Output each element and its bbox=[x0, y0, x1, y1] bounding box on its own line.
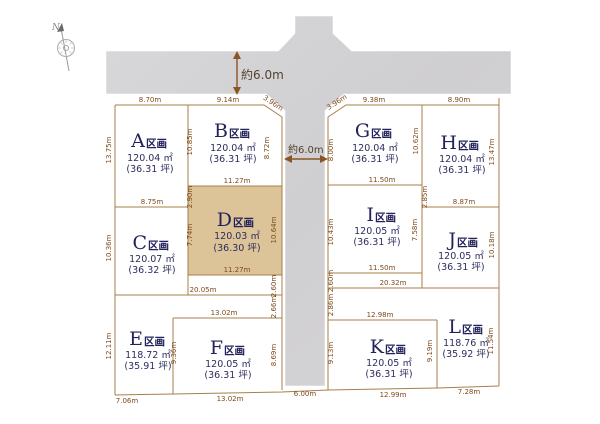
dim-k-left: 9.13m bbox=[327, 342, 335, 365]
dim-h-bottom: 8.87m bbox=[453, 198, 476, 206]
dim-i-left: 10.43m bbox=[327, 218, 335, 245]
plot-f-letter: F bbox=[210, 337, 223, 359]
dim-f-left: 9.36m bbox=[170, 342, 178, 365]
plot-a-suffix: 区画 bbox=[146, 138, 167, 150]
plot-l-suffix: 区画 bbox=[462, 324, 483, 336]
plot-f-tsubo: (36.31 坪) bbox=[204, 369, 251, 381]
dim-g-left: 8.00m bbox=[327, 139, 335, 162]
compass: N bbox=[51, 23, 75, 71]
plot-j-letter: J bbox=[446, 229, 456, 251]
plot-l-label: L 区画 118.76 ㎡ (35.92 坪) bbox=[442, 316, 489, 360]
dim-f-right: 8.69m bbox=[270, 344, 278, 367]
plot-a-letter: A bbox=[130, 130, 145, 152]
dim-e-bottom: 7.06m bbox=[116, 397, 139, 405]
plot-j-tsubo: (36.31 坪) bbox=[437, 261, 484, 273]
plot-f-suffix: 区画 bbox=[224, 345, 245, 357]
dim-a-left: 13.75m bbox=[105, 136, 113, 163]
plot-g-letter: G bbox=[355, 120, 370, 142]
plot-b-label: B 区画 120.04 ㎡ (36.31 坪) bbox=[209, 120, 256, 165]
plot-l-tsubo: (35.92 坪) bbox=[442, 348, 489, 360]
plot-a-area: 120.04 ㎡ bbox=[127, 153, 173, 164]
plot-h-letter: H bbox=[440, 132, 457, 154]
dim-b-right: 8.72m bbox=[263, 137, 271, 160]
plot-c-label: C 区画 120.07 ㎡ (36.32 坪) bbox=[128, 232, 175, 276]
dim-kl-top: 20.32m bbox=[380, 279, 407, 287]
dim-e-left: 12.11m bbox=[105, 332, 113, 359]
plot-i-label: I 区画 120.05 ㎡ (36.31 坪) bbox=[353, 204, 400, 248]
dim-h-right: 13.47m bbox=[488, 138, 496, 165]
dim-l-right: 11.54m bbox=[487, 327, 495, 354]
dim-road-bottom: 6.00m bbox=[294, 390, 317, 398]
plot-g-suffix: 区画 bbox=[371, 128, 392, 140]
plot-a-tsubo: (36.31 坪) bbox=[126, 163, 173, 175]
land-plot-diagram: N 約6.0m 約6.0m A 区画 120.04 ㎡ (36.31 坪) B … bbox=[0, 0, 600, 424]
dim-a-top: 8.70m bbox=[139, 96, 162, 104]
road-width-top-label: 約6.0m bbox=[241, 67, 284, 82]
dim-l-bottom: 7.28m bbox=[458, 388, 481, 396]
plot-k-area: 120.05 ㎡ bbox=[366, 358, 412, 369]
plot-d-suffix: 区画 bbox=[233, 217, 254, 229]
dim-b-top: 9.14m bbox=[217, 96, 240, 104]
plot-e-letter: E bbox=[129, 328, 143, 350]
plot-h-area: 120.04 ㎡ bbox=[439, 154, 485, 165]
plot-i-suffix: 区画 bbox=[375, 212, 396, 224]
plot-c-suffix: 区画 bbox=[148, 240, 169, 252]
plot-g-area: 120.04 ㎡ bbox=[352, 143, 398, 154]
plot-h-suffix: 区画 bbox=[458, 140, 479, 152]
dim-h-top: 8.90m bbox=[448, 96, 471, 104]
dim-d-segment: 2.60m bbox=[270, 275, 278, 298]
plot-h-label: H 区画 120.04 ㎡ (36.31 坪) bbox=[438, 132, 485, 176]
dim-d-right: 10.64m bbox=[270, 216, 278, 243]
dim-i-right: 7.58m bbox=[411, 219, 419, 242]
plot-e-area: 118.72 ㎡ bbox=[125, 350, 171, 361]
dim-k-bottom: 12.99m bbox=[380, 391, 407, 399]
plot-a-label: A 区画 120.04 ㎡ (36.31 坪) bbox=[126, 130, 173, 175]
dim-d-bottom: 11.27m bbox=[224, 266, 251, 274]
plot-j-area: 120.05 ㎡ bbox=[438, 251, 484, 262]
plot-d-area: 120.03 ㎡ bbox=[214, 231, 260, 242]
dim-i-left-upper: 2.85m bbox=[421, 186, 429, 209]
plot-i-area: 120.05 ㎡ bbox=[354, 226, 400, 237]
dim-g-top: 9.38m bbox=[363, 96, 386, 104]
plot-e-label: E 区画 118.72 ㎡ (35.91 坪) bbox=[124, 328, 171, 372]
plot-d-tsubo: (36.30 坪) bbox=[213, 242, 260, 254]
plot-f-area: 120.05 ㎡ bbox=[205, 359, 251, 370]
dim-gh-shared: 10.62m bbox=[412, 127, 420, 154]
dim-d-left-upper: 2.90m bbox=[186, 186, 194, 209]
dim-g-bottom: 11.50m bbox=[369, 176, 396, 184]
plot-d-letter: D bbox=[217, 209, 232, 231]
dim-b-bottom: 11.27m bbox=[224, 177, 251, 185]
plot-k-letter: K bbox=[370, 336, 385, 358]
site-plan: N 約6.0m 約6.0m A 区画 120.04 ㎡ (36.31 坪) B … bbox=[0, 0, 600, 424]
dim-d-left: 7.74m bbox=[186, 224, 194, 247]
plot-b-letter: B bbox=[214, 120, 228, 142]
plot-b-suffix: 区画 bbox=[229, 128, 250, 140]
plot-b-area: 120.04 ㎡ bbox=[210, 143, 256, 154]
plot-k-tsubo: (36.31 坪) bbox=[365, 368, 412, 380]
plot-f-label: F 区画 120.05 ㎡ (36.31 坪) bbox=[204, 337, 251, 381]
plot-l-letter: L bbox=[448, 316, 461, 338]
dim-a-bottom: 8.75m bbox=[141, 198, 164, 206]
dim-ef-top: 20.05m bbox=[190, 286, 217, 294]
plot-c-area: 120.07 ㎡ bbox=[129, 254, 175, 265]
plot-i-letter: I bbox=[366, 204, 374, 226]
plot-c-letter: C bbox=[132, 232, 147, 254]
plot-e-tsubo: (35.91 坪) bbox=[124, 360, 171, 372]
plot-k-label: K 区画 120.05 ㎡ (36.31 坪) bbox=[365, 336, 412, 380]
plot-g-label: G 区画 120.04 ㎡ (36.31 坪) bbox=[351, 120, 398, 165]
plot-l-area: 118.76 ㎡ bbox=[443, 338, 489, 349]
plot-e-suffix: 区画 bbox=[144, 336, 165, 348]
dim-c-left: 10.36m bbox=[105, 234, 113, 261]
dim-f-bottom: 13.02m bbox=[217, 395, 244, 403]
road-width-center-label: 約6.0m bbox=[288, 143, 324, 156]
dim-k-top: 12.98m bbox=[367, 311, 394, 319]
plot-j-suffix: 区画 bbox=[457, 237, 478, 249]
plot-h-tsubo: (36.31 坪) bbox=[438, 164, 485, 176]
dim-i-segment: 2.60m bbox=[327, 270, 335, 293]
dim-ab-shared: 10.85m bbox=[186, 128, 194, 155]
dim-j-right: 10.18m bbox=[488, 231, 496, 258]
dim-e-segment: 2.66m bbox=[270, 296, 278, 319]
plot-b-tsubo: (36.31 坪) bbox=[209, 153, 256, 165]
plot-g-tsubo: (36.31 坪) bbox=[351, 153, 398, 165]
plot-i-tsubo: (36.31 坪) bbox=[353, 236, 400, 248]
dim-i-bottom: 11.50m bbox=[369, 264, 396, 272]
plot-k-suffix: 区画 bbox=[385, 344, 406, 356]
dim-f-top: 13.02m bbox=[211, 309, 238, 317]
plot-c-tsubo: (36.32 坪) bbox=[128, 264, 175, 276]
plot-j-label: J 区画 120.05 ㎡ (36.31 坪) bbox=[437, 229, 484, 273]
dim-l-segment: 2.86m bbox=[327, 294, 335, 317]
dim-k-right: 9.19m bbox=[426, 340, 434, 363]
